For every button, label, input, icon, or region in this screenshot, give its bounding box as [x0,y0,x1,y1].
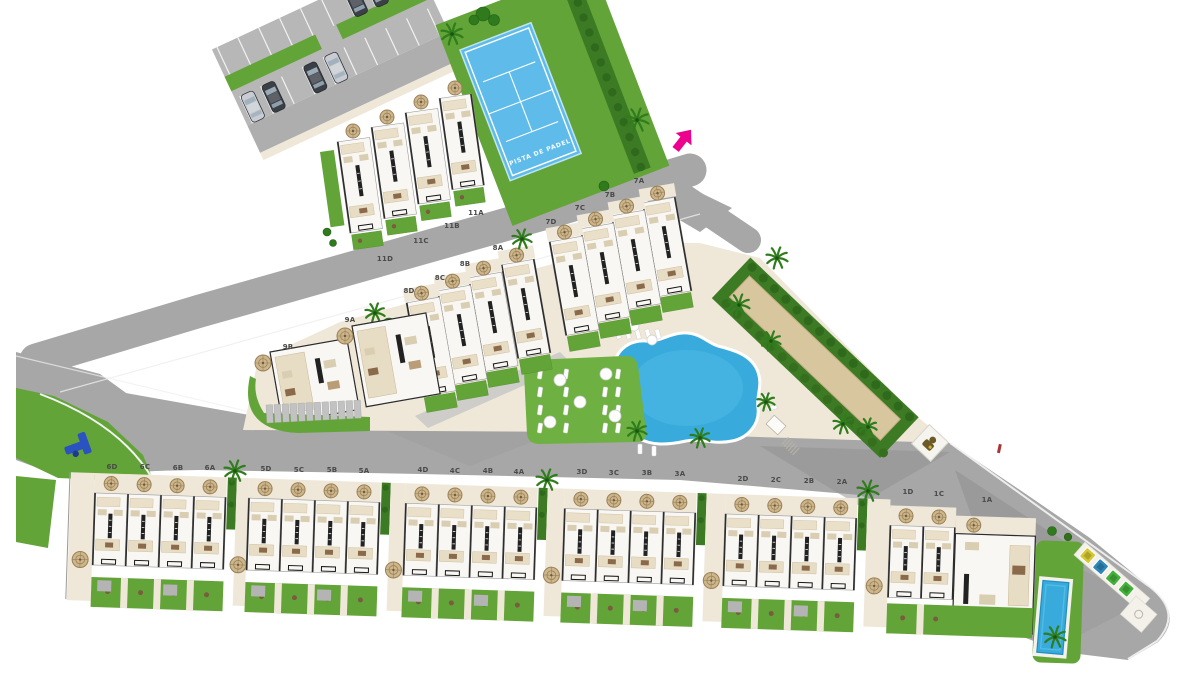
stair-strip [141,515,146,540]
roof-terrace [408,507,431,517]
furniture [942,543,951,549]
unit-label-5C: 5C [294,466,304,474]
unit-label-3D: 3D [576,468,587,476]
stair-strip [452,525,457,550]
furniture [633,527,642,533]
pergola-icon [104,476,118,490]
furniture [761,531,770,537]
patio [728,601,742,612]
pergola-icon [640,494,654,508]
garden-path [817,601,825,631]
palm-trunk [545,478,549,482]
tile [298,403,305,421]
house-unit [125,494,160,567]
pergola-icon [673,495,687,509]
unit-label-9A: 9A [345,316,356,324]
roof-terrace [728,518,751,528]
stair-rung [453,531,456,532]
roof-terrace [666,516,689,526]
furniture [350,518,359,524]
house-unit [158,495,193,568]
sun-lounger-icon [638,444,642,454]
palm-trunk [233,469,237,473]
stair-rung [420,530,423,531]
furniture [777,532,786,538]
pergola-icon [414,95,428,109]
patio [97,580,111,591]
furniture [317,516,326,522]
furniture [666,528,675,534]
garden-path [431,588,439,618]
unit-label-6C: 6C [140,463,150,471]
pergola-icon [385,562,402,579]
table [105,542,113,547]
garden-path [656,596,664,626]
tile [314,402,321,420]
unit-label-8B: 8B [460,260,471,268]
stair-rung [208,529,211,530]
furniture [523,523,532,529]
pergola-icon [768,498,782,512]
stair-rung [142,527,145,528]
unit-label-6A: 6A [205,464,216,472]
unit-label-7C: 7C [575,204,585,212]
pergola-icon [866,578,883,595]
stair-rung [678,539,681,540]
stair-rung [486,538,489,539]
furniture [213,513,222,519]
stair-rung [677,545,680,546]
stair-rung [739,553,742,554]
stair-rung [263,531,266,532]
side-walkway [67,472,95,601]
pergola-icon [324,484,338,498]
furniture [567,525,576,531]
garden-path [751,599,759,629]
palm-trunk [1053,635,1057,639]
stair-strip [517,527,522,552]
pergola-icon [203,480,217,494]
unit-label-8A: 8A [493,244,504,252]
house-unit [723,514,758,587]
stair-rung [518,546,521,547]
patio [633,600,647,611]
stair-rung [937,559,940,560]
pergola-icon [703,572,720,589]
unit-label-11B: 11B [444,222,460,230]
table [674,561,682,566]
garden-path [340,585,348,615]
stair-rung [838,556,841,557]
stair-strip [771,536,776,561]
roof-terrace [567,513,590,523]
roof-terrace [441,508,464,518]
roof-terrace [633,515,656,525]
table [736,563,744,568]
stair-rung [578,548,581,549]
house-unit [469,505,504,578]
roof-terrace [350,505,373,515]
palm-trunk [866,425,870,429]
palm-trunk [373,311,377,315]
table [138,543,146,548]
unit-label-7A: 7A [634,177,645,185]
stair-rung [579,541,582,542]
stair-rung [773,542,776,543]
house-unit [279,499,314,572]
house-unit [789,516,824,589]
roof-terrace [474,510,497,520]
table [482,555,490,560]
tile [354,400,361,418]
house-unit-9a [352,313,440,407]
roof-terrace [284,503,307,513]
palm-trunk [764,400,768,404]
stair-rung [806,543,809,544]
pergola-icon [574,492,588,506]
pergola-icon [255,355,271,371]
stair-strip [484,526,489,551]
stair-rung [519,539,522,540]
furniture [827,533,836,539]
pergola-icon [291,483,305,497]
stair-rung [839,544,842,545]
furniture [474,522,483,528]
table [292,549,300,554]
furniture [359,154,369,161]
stair-rung [485,545,488,546]
palm-trunk [450,32,454,36]
stair-rung [262,537,265,538]
umbrella-icon [600,368,612,380]
table [802,565,810,570]
stair-rung [805,549,808,550]
stair-rung [612,543,615,544]
unit-label-5B: 5B [327,466,338,474]
pergola-icon [380,110,394,124]
unit-label-2D: 2D [737,475,748,483]
furniture [98,509,107,515]
pergola-icon [607,493,621,507]
furniture [616,526,625,532]
furniture [197,512,206,518]
furniture [507,523,516,529]
furniture [979,594,995,605]
table [416,553,424,558]
stair-rung [419,542,422,543]
stair-rung [362,534,365,535]
bush-icon [1064,533,1072,541]
unit-label-11D: 11D [377,255,393,263]
tile [266,405,273,423]
stair-rung [208,523,211,524]
palm-trunk [841,422,845,426]
table [835,567,843,572]
bush-icon [1048,527,1057,536]
unit-label-4B: 4B [483,467,494,475]
pergola-icon [932,510,946,524]
bush-icon [330,240,337,247]
furniture [600,526,609,532]
site-plan-canvas: PISTA DE PADEL11A11B11C11D7A7B7C7D8A8B8C… [0,0,1200,683]
furniture [333,517,342,523]
unit-label-8C: 8C [435,274,445,282]
garden-path [623,595,631,625]
furniture [147,511,156,517]
patio [251,585,265,596]
stair-rung [645,538,648,539]
stair-rung [142,521,145,522]
house-unit [756,515,791,588]
table [515,556,523,561]
table [259,547,267,552]
house-unit [661,512,696,585]
house-unit [562,509,597,582]
roof-terrace [507,511,530,521]
stair-rung [740,541,743,542]
house-unit [403,503,438,576]
furniture [268,515,277,521]
palm-trunk [775,256,779,260]
furniture [408,519,417,525]
patio [474,595,488,606]
tile [330,401,337,419]
stair-rung [677,551,680,552]
patio [163,584,177,595]
furniture [909,542,918,548]
furniture [343,156,353,163]
garden-path [120,578,128,608]
pergola-icon [137,477,151,491]
house-unit [246,498,281,571]
stair-rung [208,535,211,536]
furniture [744,531,753,537]
stair-rung [904,558,907,559]
pergola-icon [735,497,749,511]
stair-rung [296,532,299,533]
stair-rung [175,534,178,535]
stair-rung [420,536,423,537]
furniture [490,522,499,528]
unit-label-9B: 9B [283,343,294,351]
garden-path [307,584,315,614]
site-plan-page: PISTA DE PADEL11A11B11C11D7A7B7C7D8A8B8C… [0,0,1200,683]
furniture [427,125,437,132]
furniture [252,514,261,520]
pergola-icon [481,489,495,503]
tile [322,402,329,420]
pergola-icon [543,567,560,584]
table [171,545,179,550]
furniture [285,515,294,521]
furniture [682,529,691,535]
furniture [393,139,403,146]
umbrella-icon [574,396,586,408]
roof-terrace [794,520,817,530]
table [204,546,212,551]
patio [408,590,422,601]
roof-terrace [317,504,340,514]
stair-rung [805,555,808,556]
furniture [411,127,421,134]
unit-label-2C: 2C [771,476,781,484]
unit-label-8D: 8D [403,287,414,295]
furniture [424,520,433,526]
pergola-icon [230,557,247,574]
unit-label-4C: 4C [450,467,460,475]
tile [306,403,313,421]
terrace [1008,545,1030,606]
pergola-icon [514,490,528,504]
stair-rung [644,550,647,551]
table [608,559,616,564]
stair-rung [904,564,907,565]
unit-label-3B: 3B [642,469,653,477]
stair-rung [519,533,522,534]
patio [794,605,808,616]
furniture [926,543,935,549]
pergola-icon [346,124,360,138]
pergola-icon [357,485,371,499]
table [1012,565,1025,574]
unit-label-2B: 2B [804,477,815,485]
patio [567,596,581,607]
garden-path [497,590,505,620]
roof-terrace [163,499,186,509]
garden-path [784,600,792,630]
stair-rung [904,552,907,553]
roof-terrace [892,529,915,539]
roof-terrace [600,514,623,524]
bush-icon [489,15,500,26]
unit-label-1D: 1D [902,488,913,496]
stair-rung [362,528,365,529]
pergola-icon [448,81,462,95]
sun-lounger-icon [652,446,656,456]
table [900,575,908,580]
garden-path [274,583,282,613]
back-gardens [886,603,1033,638]
stair-rung [329,533,332,534]
patio [317,589,331,600]
furniture [794,532,803,538]
table [325,550,333,555]
stair-strip [963,574,969,604]
house-unit [436,504,471,577]
house-unit [92,493,127,566]
stair-rung [296,526,299,527]
furniture [366,518,375,524]
garden-path [153,579,161,609]
stair-rung [142,533,145,534]
garden-path [590,594,598,624]
stair-rung [361,540,364,541]
unit-label-6D: 6D [106,463,117,471]
pool-highlight [631,350,743,426]
furniture [461,110,471,117]
stair-strip [174,516,179,541]
table [575,558,583,563]
tile [346,400,353,418]
furniture [377,142,387,149]
table [933,576,941,581]
roof-terrace [196,500,219,510]
palm-trunk [635,118,639,122]
pergola-icon [170,479,184,493]
pergola-icon [337,328,353,344]
pergola-icon [899,509,913,523]
umbrella-icon [544,416,556,428]
stair-rung [486,532,489,533]
stair-rung [329,527,332,528]
stair-rung [937,553,940,554]
furniture [843,534,852,540]
unit-label-3C: 3C [609,469,619,477]
stair-rung [453,537,456,538]
tile [338,401,345,419]
furniture [300,516,309,522]
roof-terrace [251,502,274,512]
stair-rung [263,525,266,526]
furniture [810,533,819,539]
pergola-icon [967,518,981,532]
roof-terrace [827,521,850,531]
separator-walkway [863,499,890,628]
stair-rung [739,547,742,548]
furniture [114,510,123,516]
unit-label-11C: 11C [413,237,428,245]
tile [274,404,281,422]
house-unit [887,525,922,598]
stair-rung [611,549,614,550]
stair-rung [937,565,940,566]
stair-strip [108,514,113,539]
palm-trunk [520,237,524,241]
furniture [965,542,979,550]
house-unit [191,496,226,569]
stair-rung [772,554,775,555]
stair-rung [644,544,647,545]
stair-strip [804,537,809,562]
house-unit [628,511,663,584]
tile [290,403,297,421]
umbrella-icon [554,374,566,386]
stair-rung [295,538,298,539]
roof-terrace [925,531,948,541]
unit-label-1C: 1C [934,490,944,498]
roof-terrace [97,497,120,507]
furniture [893,542,902,548]
bush-icon [469,15,479,25]
palm-trunk [866,489,870,493]
pergola-icon [801,499,815,513]
stair-rung [175,528,178,529]
table [358,551,366,556]
furniture [164,511,173,517]
stair-rung [772,548,775,549]
furniture [180,512,189,518]
furniture [728,530,737,536]
unit-label-4A: 4A [514,468,525,476]
house-unit [920,526,955,599]
pergola-icon [448,488,462,502]
stair-rung [838,550,841,551]
house-unit [822,517,857,590]
garden-path [916,604,924,634]
unit-label-7B: 7B [605,191,616,199]
garden-path [186,580,194,610]
unit-label-5A: 5A [359,467,370,475]
